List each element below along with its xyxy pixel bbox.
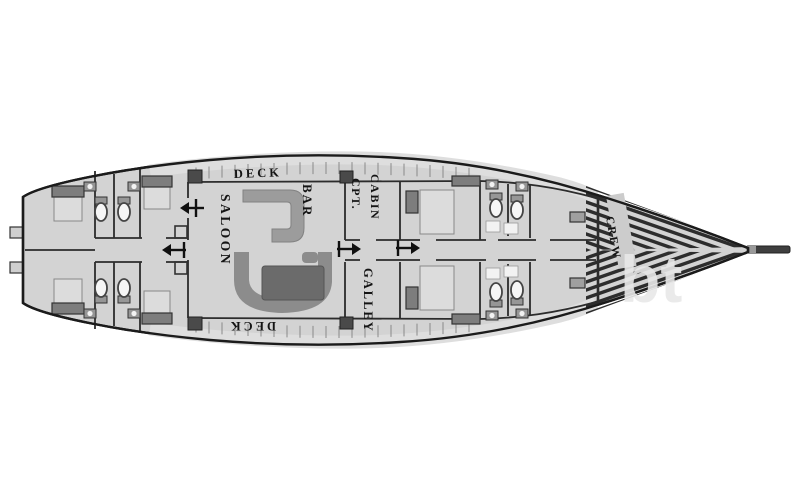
saloon-label: SALOON: [218, 194, 233, 266]
toilet-icon: [511, 201, 523, 219]
toilet-icon: [490, 199, 502, 217]
toilet-icon: [118, 203, 130, 221]
deck-plan-page: bt DECK DECK SALOON BAR CPT. CABIN GALLE…: [0, 0, 800, 500]
bar-label: BAR: [300, 184, 315, 217]
watermark: bt: [620, 242, 682, 316]
window: [570, 278, 585, 288]
toilet-icon: [118, 279, 130, 297]
cpt-cabin-label-line1: CPT.: [349, 178, 363, 210]
galley-label: GALLEY: [361, 268, 375, 333]
dining-table: [262, 266, 324, 300]
sofa-hook: [302, 252, 318, 263]
deck-label-bottom: DECK: [228, 319, 276, 333]
toilet-icon: [95, 203, 107, 221]
stern-platform-step: [10, 227, 23, 238]
deck-label-top: DECK: [234, 165, 283, 181]
stern-platform-step: [10, 262, 23, 273]
deck-plan: bt DECK DECK SALOON BAR CPT. CABIN GALLE…: [0, 0, 800, 500]
toilet-icon: [490, 283, 502, 301]
window: [570, 212, 585, 222]
toilet-icon: [511, 281, 523, 299]
cpt-cabin-label-line2: CABIN: [368, 174, 382, 220]
toilet-icon: [95, 279, 107, 297]
